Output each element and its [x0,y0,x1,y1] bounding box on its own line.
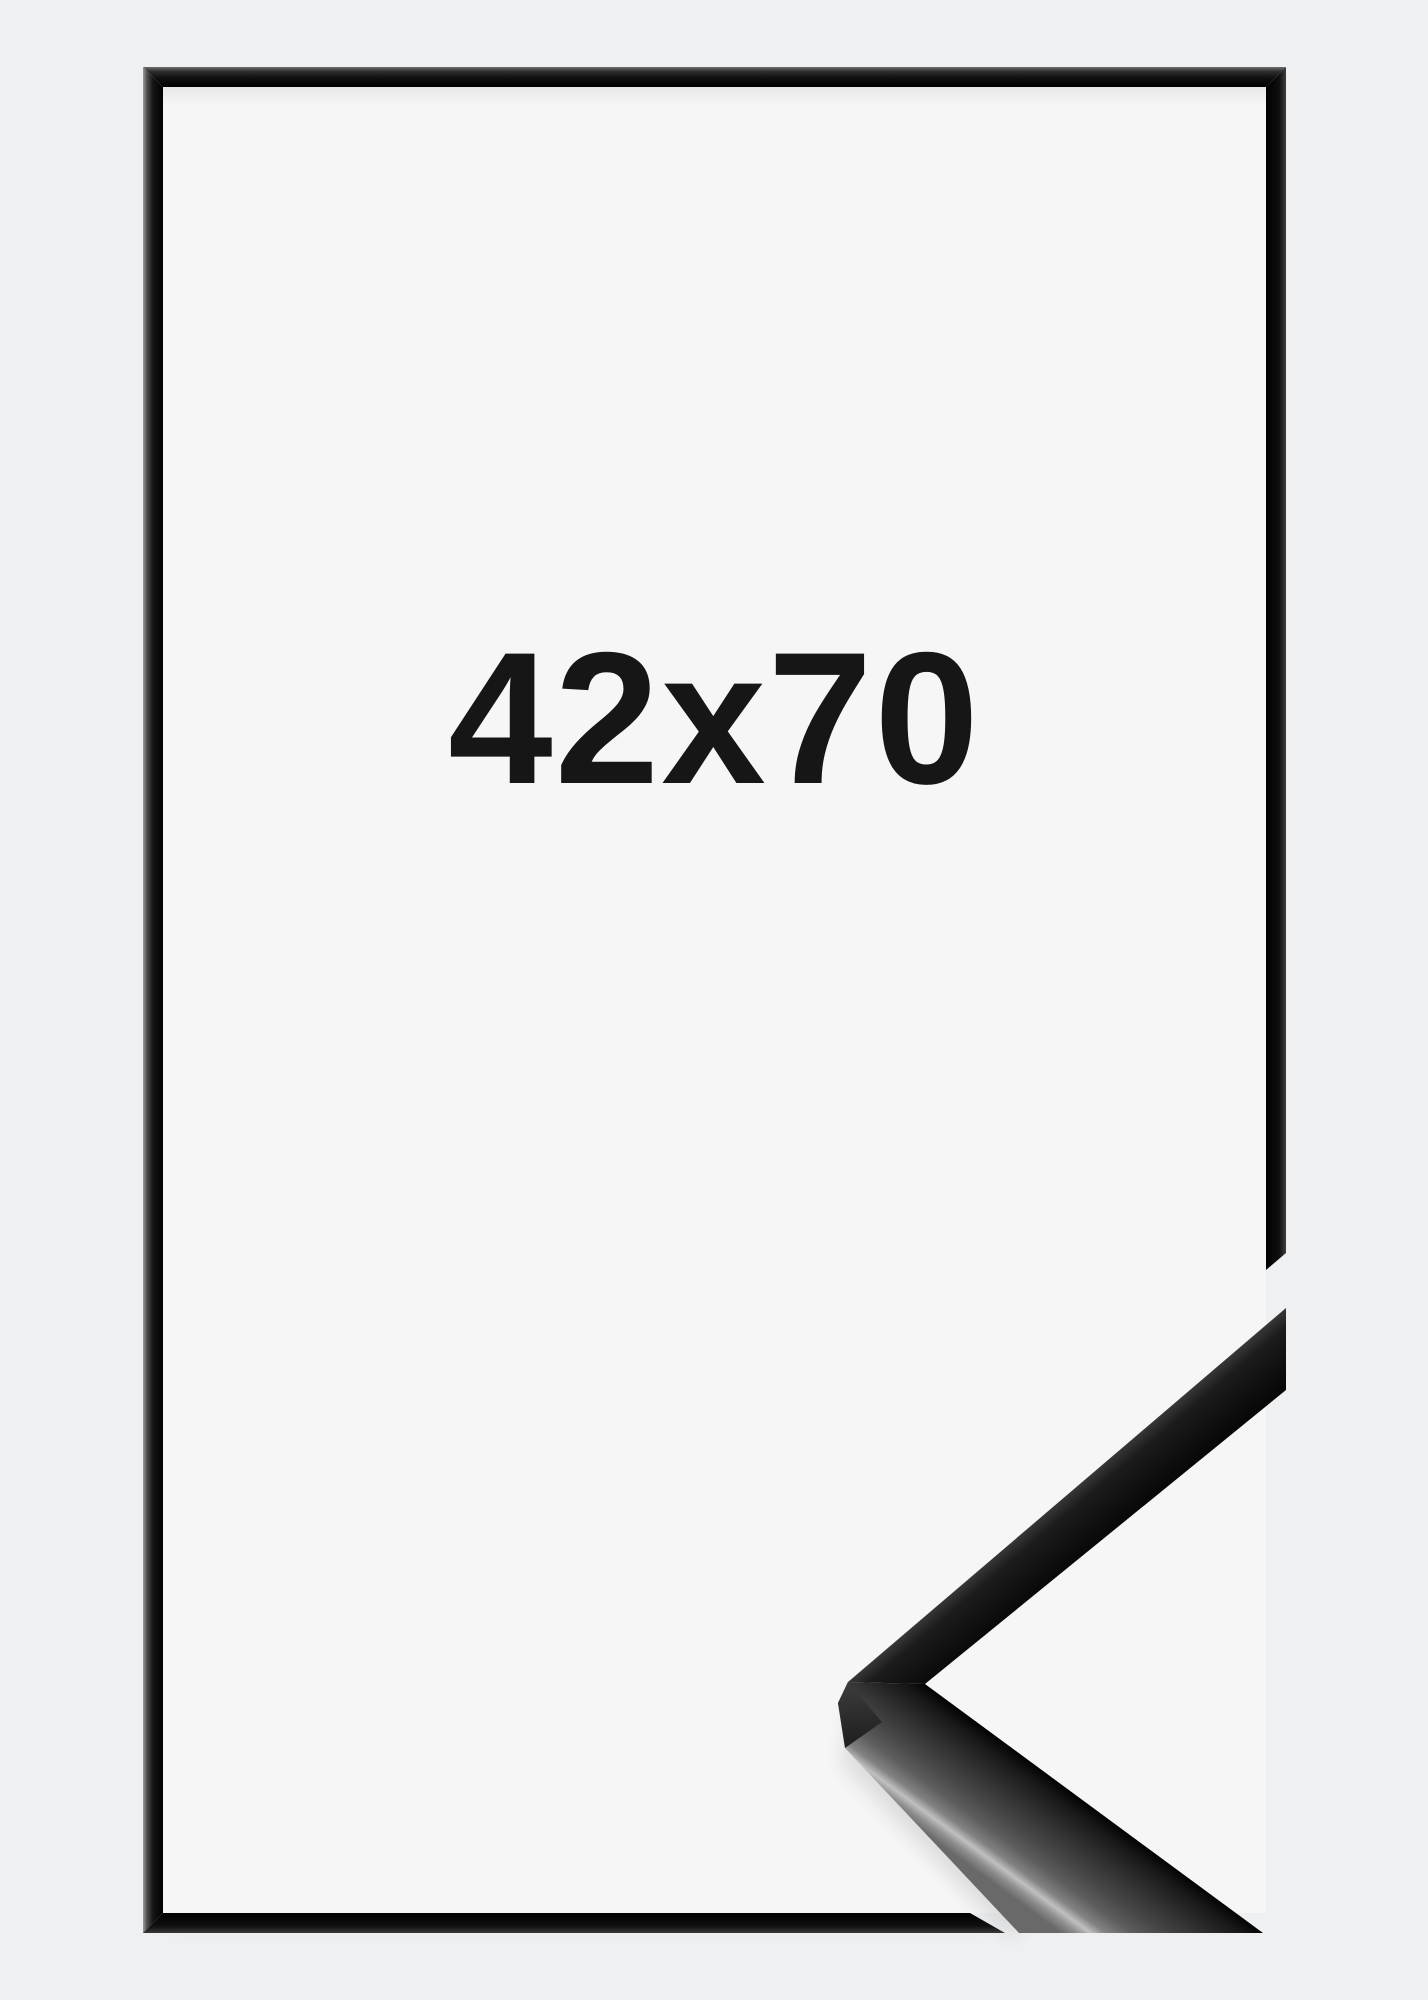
frame-product-photo: 42x70 [0,0,1428,2000]
frame-left-bar [143,67,163,1933]
frame-drop-shadow [175,1933,985,1939]
frame-photo-scene [0,0,1428,2000]
frame-top-bar [143,67,1286,87]
frame-bottom-bar [143,1913,1005,1933]
frame-size-label: 42x70 [143,624,1286,812]
frame-interior-inner-shadow [163,87,1266,105]
frame-interior [163,87,1266,1913]
